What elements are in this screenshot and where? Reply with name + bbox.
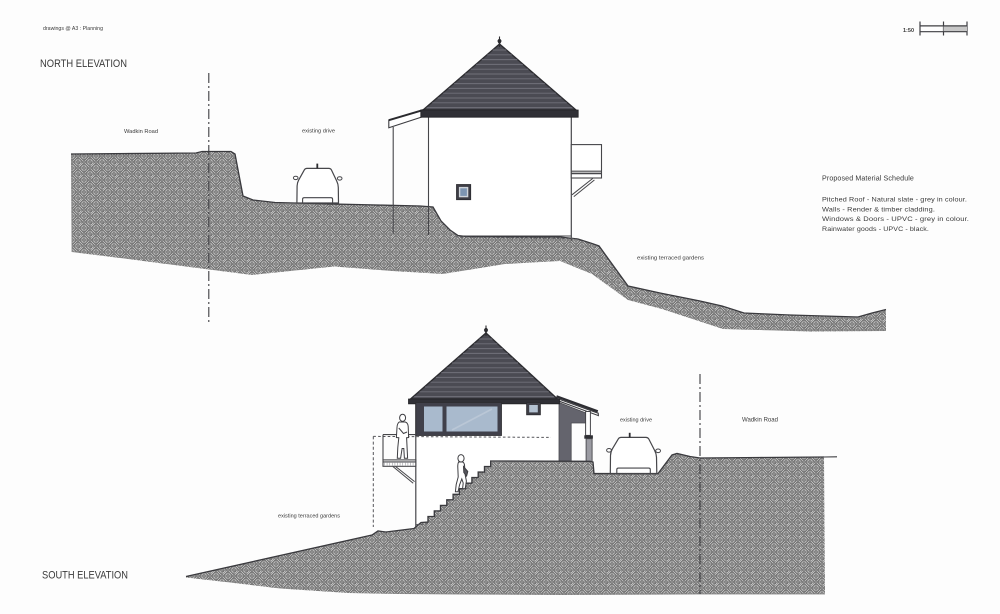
svg-text:drawings @ A3 : Planning: drawings @ A3 : Planning bbox=[43, 26, 103, 32]
svg-text:Proposed Material Schedule: Proposed Material Schedule bbox=[822, 176, 914, 183]
svg-text:SOUTH ELEVATION: SOUTH ELEVATION bbox=[42, 570, 128, 582]
svg-text:existing terraced gardens: existing terraced gardens bbox=[637, 256, 704, 262]
svg-text:Pitched Roof - Natural slate -: Pitched Roof - Natural slate - grey in c… bbox=[822, 197, 967, 204]
svg-text:Wadkin Road: Wadkin Road bbox=[124, 129, 158, 135]
svg-text:existing terraced gardens: existing terraced gardens bbox=[278, 514, 340, 520]
svg-text:Windows & Doors - UPVC - grey: Windows & Doors - UPVC - grey in colour. bbox=[822, 216, 969, 223]
svg-text:NORTH ELEVATION: NORTH ELEVATION bbox=[40, 58, 127, 70]
svg-text:Rainwater goods - UPVC - black: Rainwater goods - UPVC - black. bbox=[822, 226, 929, 233]
svg-text:existing drive: existing drive bbox=[620, 418, 652, 424]
svg-text:existing drive: existing drive bbox=[302, 129, 335, 135]
svg-text:Wadkin Road: Wadkin Road bbox=[742, 418, 778, 424]
svg-text:Walls - Render & timber cladd: Walls - Render & timber cladding. bbox=[822, 206, 935, 213]
svg-text:1:50: 1:50 bbox=[903, 28, 914, 34]
